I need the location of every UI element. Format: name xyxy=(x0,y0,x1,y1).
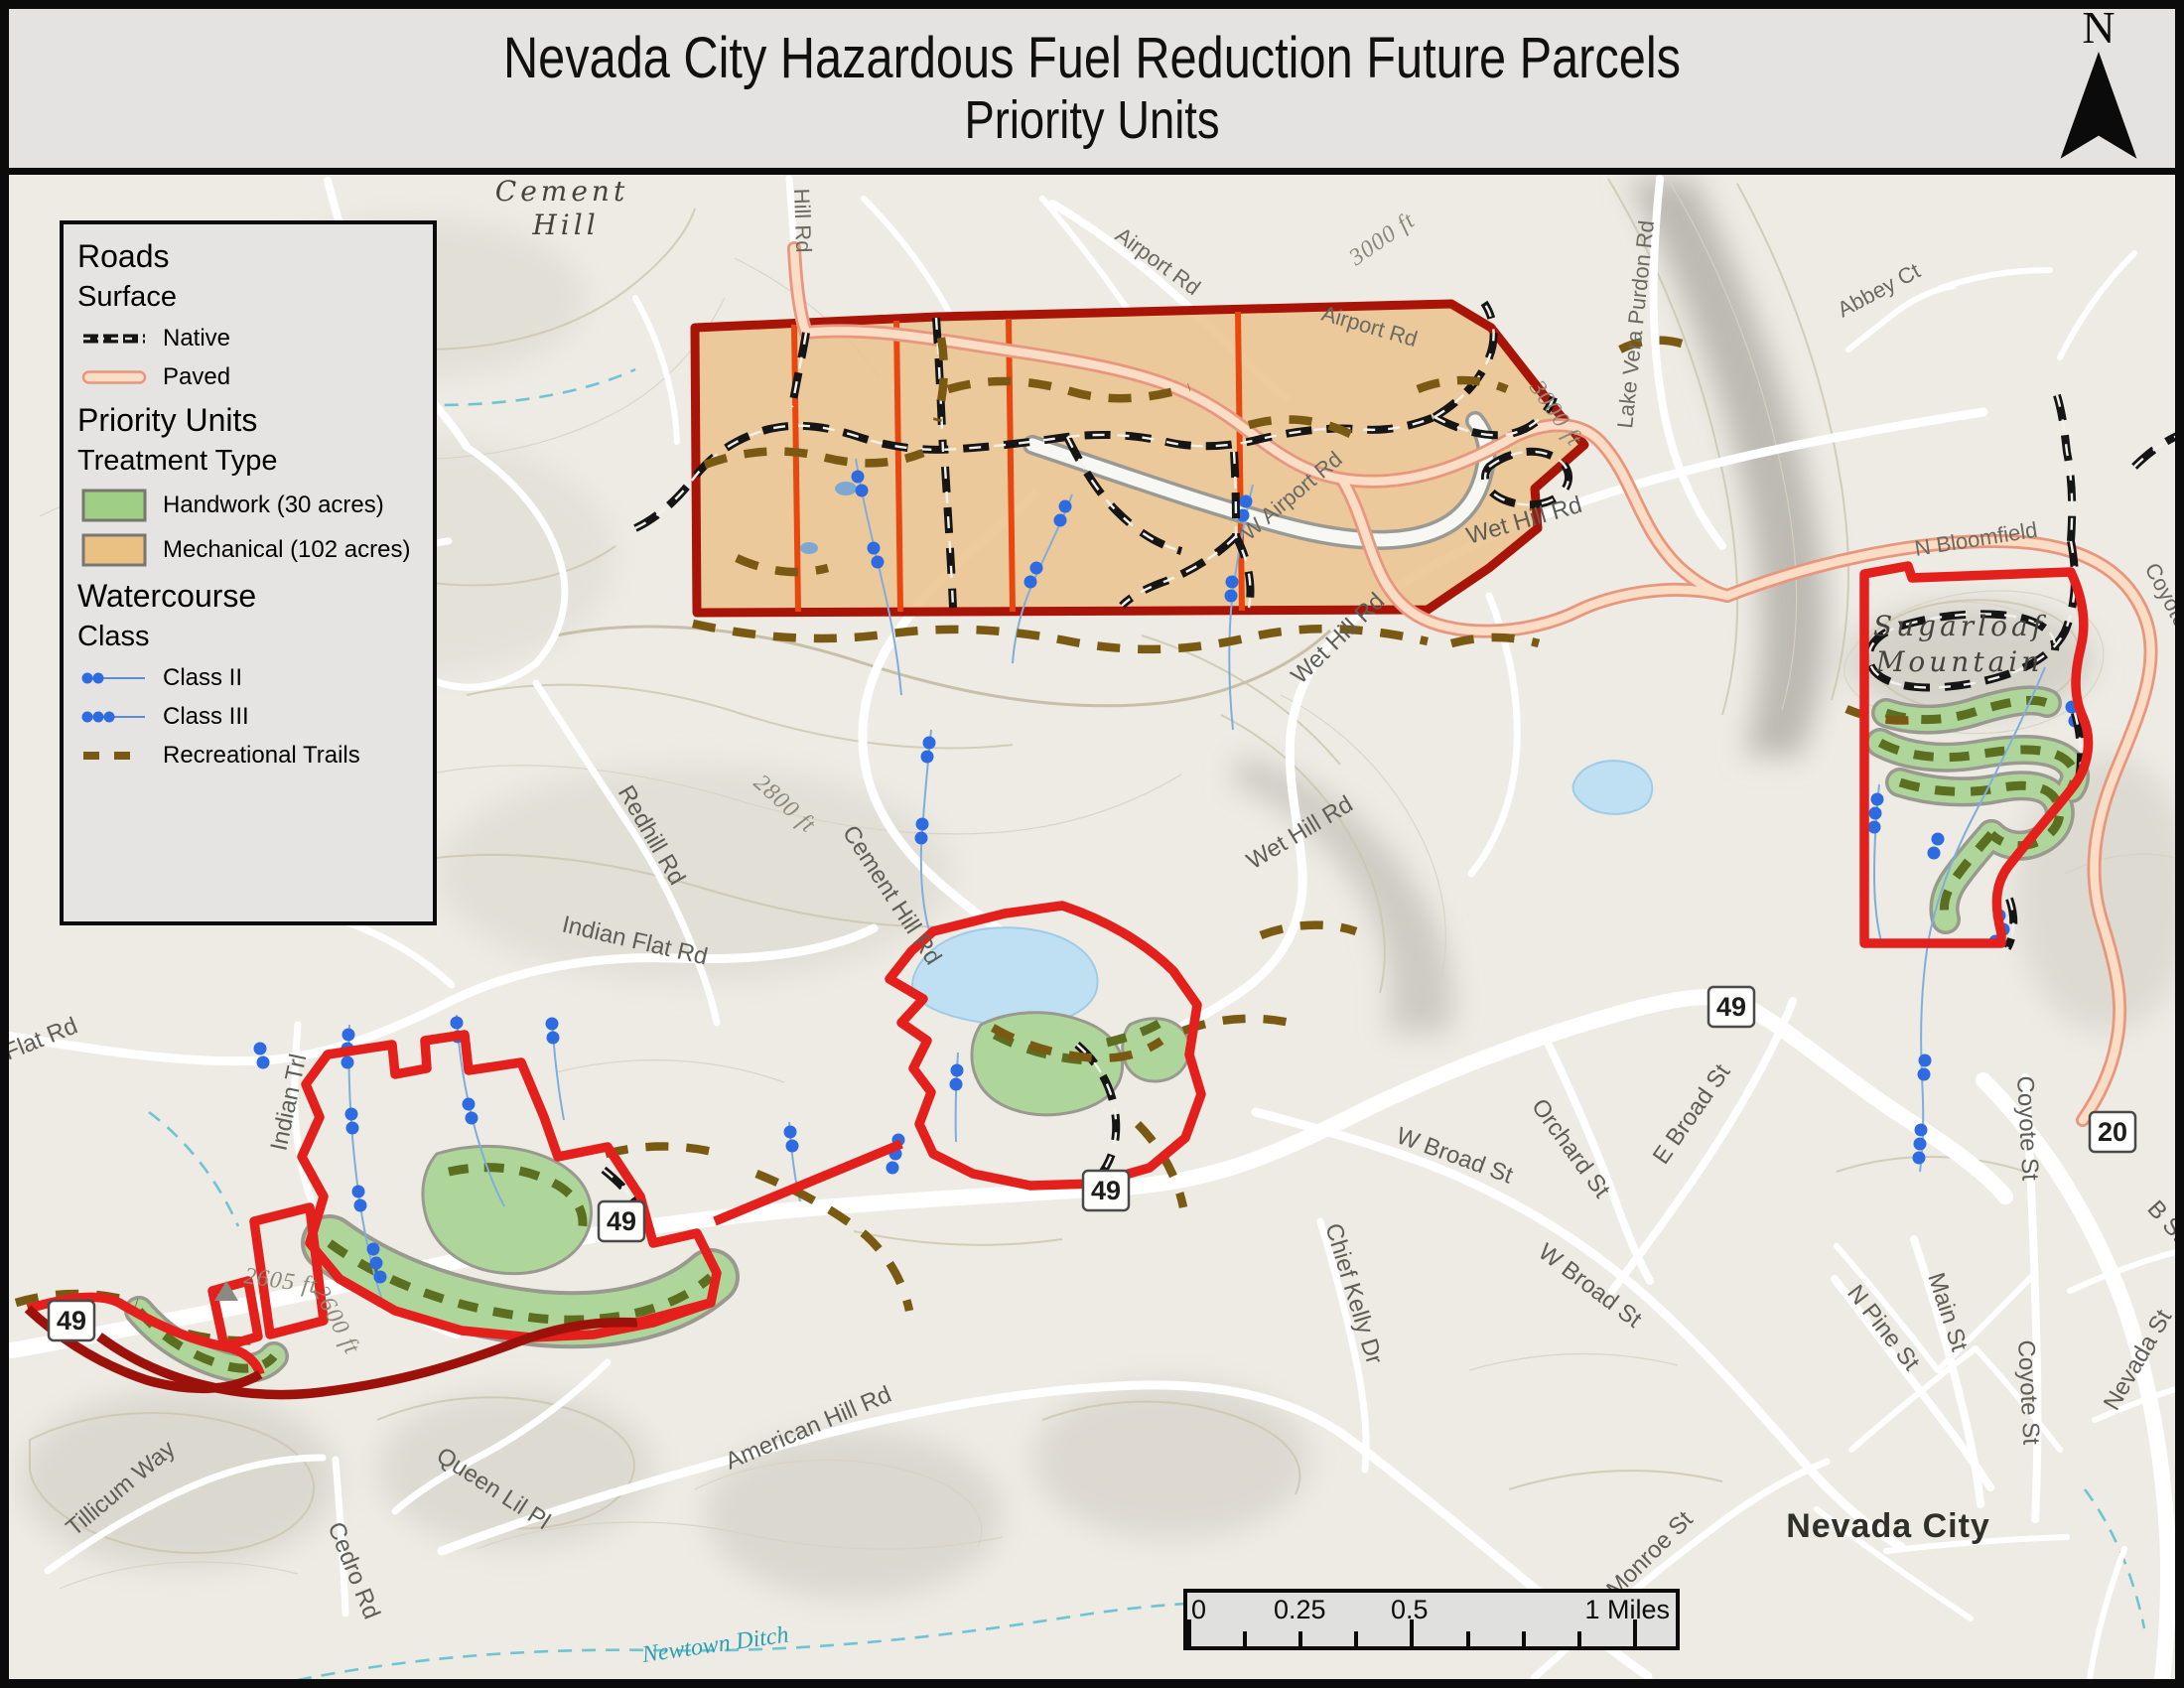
legend-label-native: Native xyxy=(163,325,230,352)
route-49-shield-2: 49 xyxy=(599,1201,644,1241)
legend-item-class-iii: Class III xyxy=(81,703,433,731)
scale-tick xyxy=(1298,1631,1302,1646)
legend-item-mechanical: Mechanical (102 acres) xyxy=(81,533,433,567)
map-title: Nevada City Hazardous Fuel Reduction Fut… xyxy=(503,27,1681,91)
svg-text:49: 49 xyxy=(1091,1176,1121,1205)
legend-label-paved: Paved xyxy=(163,363,230,391)
map-document: Cement Hill Hill Rd Airport Rd Airport R… xyxy=(0,0,2184,1688)
map-label-sugarloaf-line2: Mountain xyxy=(1875,645,2044,678)
legend-label-class-ii: Class II xyxy=(163,664,242,692)
svg-text:49: 49 xyxy=(1716,992,1746,1022)
map-label-hill-rd: Hill Rd xyxy=(789,188,816,253)
route-49-shield-3: 49 xyxy=(1083,1171,1129,1210)
map-label-sugarloaf-line1: Sugarloaf xyxy=(1873,610,2047,642)
legend-label-recreational-trails: Recreational Trails xyxy=(163,742,360,770)
legend-subheading-surface: Surface xyxy=(77,281,433,314)
scale-tick xyxy=(1522,1631,1526,1646)
svg-text:49: 49 xyxy=(607,1206,636,1236)
map-label-cement-hill-line1: Cement xyxy=(495,175,628,208)
scale-label-1-miles: 1 Miles xyxy=(1584,1595,1670,1625)
scale-label-025: 0.25 xyxy=(1274,1595,1326,1625)
map-subtitle: Priority Units xyxy=(964,91,1219,150)
handwork-swatch xyxy=(81,489,147,522)
legend-item-handwork: Handwork (30 acres) xyxy=(81,489,433,522)
legend-label-mechanical: Mechanical (102 acres) xyxy=(163,536,410,564)
svg-text:20: 20 xyxy=(2098,1117,2127,1147)
legend-subheading-class: Class xyxy=(77,621,433,653)
legend-label-handwork: Handwork (30 acres) xyxy=(163,492,384,519)
svg-text:49: 49 xyxy=(57,1306,86,1336)
scale-tick xyxy=(1354,1631,1358,1646)
legend: Roads Surface Native Paved Priority Unit… xyxy=(60,220,437,925)
legend-item-paved: Paved xyxy=(81,363,433,391)
north-arrow: N xyxy=(2051,4,2146,159)
native-road-symbol xyxy=(81,331,147,347)
route-20-shield: 20 xyxy=(2090,1112,2135,1152)
legend-label-class-iii: Class III xyxy=(163,703,249,731)
route-49-shield-1: 49 xyxy=(49,1301,94,1340)
paved-road-symbol xyxy=(81,369,147,385)
map-label-cement-hill-line2: Hill xyxy=(531,209,599,241)
map-label-coyote-st-2: Coyote St xyxy=(2012,1339,2044,1446)
north-arrow-label: N xyxy=(2082,4,2115,52)
scale-label-0: 0 xyxy=(1191,1595,1206,1625)
map-label-coyote-st-1: Coyote St xyxy=(2011,1075,2043,1182)
mechanical-swatch xyxy=(81,533,147,567)
legend-subheading-treatment-type: Treatment Type xyxy=(77,445,433,478)
legend-item-recreational-trails: Recreational Trails xyxy=(81,742,433,770)
recreational-trails-symbol xyxy=(81,748,147,764)
legend-heading-priority-units: Priority Units xyxy=(77,402,433,439)
scale-tick xyxy=(1633,1619,1637,1646)
scale-tick xyxy=(1410,1619,1414,1646)
scale-tick xyxy=(1187,1619,1191,1646)
scale-tick xyxy=(1466,1631,1470,1646)
north-arrow-icon xyxy=(2053,52,2144,159)
scale-bar: 0 0.25 0.5 1 Miles xyxy=(1183,1589,1680,1650)
class-ii-symbol xyxy=(81,670,147,686)
route-49-shield-4: 49 xyxy=(1708,987,1754,1027)
legend-item-native: Native xyxy=(81,325,433,352)
scale-tick xyxy=(1577,1631,1581,1646)
scale-tick xyxy=(1243,1631,1247,1646)
legend-heading-watercourse: Watercourse xyxy=(77,578,433,615)
map-label-nevada-city: Nevada City xyxy=(1786,1507,1990,1545)
title-bar: Nevada City Hazardous Fuel Reduction Fut… xyxy=(9,9,2175,175)
class-iii-symbol xyxy=(81,709,147,725)
legend-item-class-ii: Class II xyxy=(81,664,433,692)
legend-heading-roads: Roads xyxy=(77,238,433,275)
